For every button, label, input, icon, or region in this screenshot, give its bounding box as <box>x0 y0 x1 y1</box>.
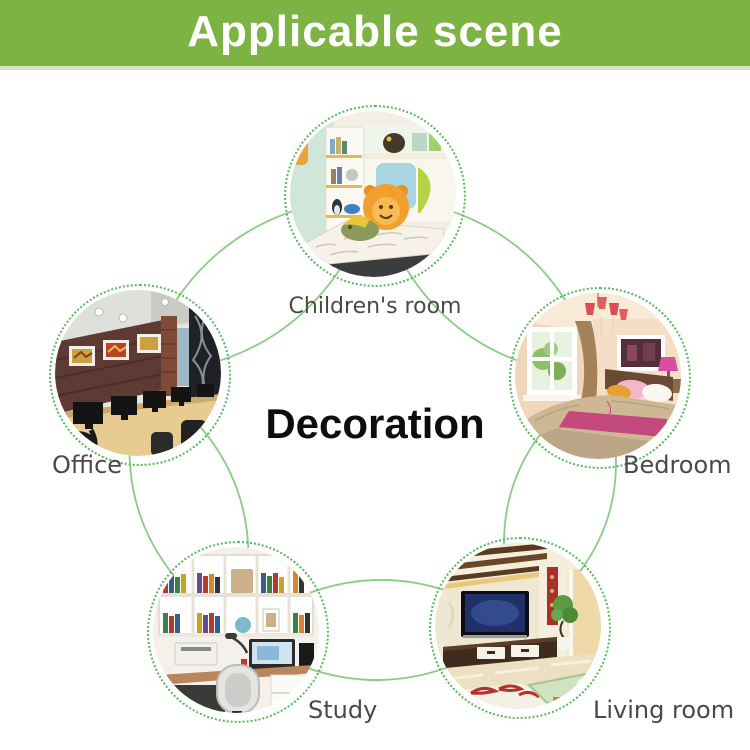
scene-node-bedroom <box>509 287 691 469</box>
office-photo <box>55 290 221 456</box>
children-room-photo <box>290 111 456 277</box>
scene-node-office <box>49 284 231 466</box>
bedroom-photo <box>515 293 681 459</box>
label-study: Study <box>308 696 377 724</box>
label-bedroom: Bedroom <box>623 451 732 479</box>
label-office: Office <box>52 451 122 479</box>
page: Applicable scene <box>0 0 750 750</box>
label-living-room: Living room <box>593 696 734 724</box>
scene-node-living-room <box>429 537 611 719</box>
study-photo <box>153 547 319 713</box>
scene-node-study <box>147 541 329 723</box>
scene-node-children-room <box>284 105 466 287</box>
label-children-room: Children's room <box>289 294 462 319</box>
living-room-photo <box>435 543 601 709</box>
center-label: Decoration <box>265 400 484 448</box>
